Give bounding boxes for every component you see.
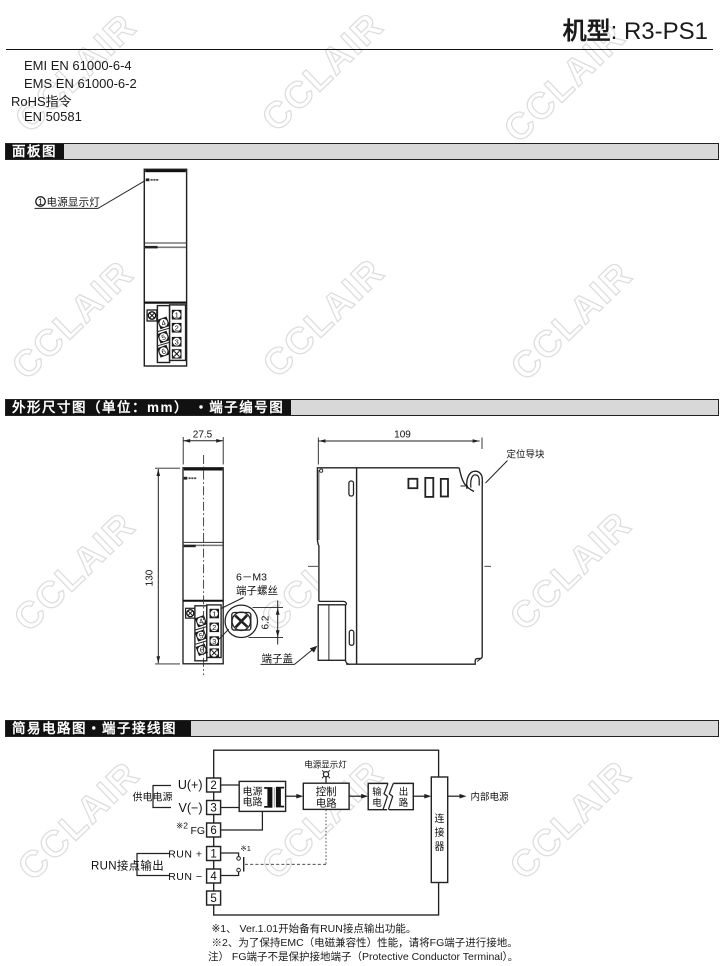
svg-text:3: 3 bbox=[212, 637, 216, 646]
svg-text:电源显示灯: 电源显示灯 bbox=[47, 196, 101, 209]
svg-text:RUN +: RUN + bbox=[168, 848, 202, 860]
svg-text:接: 接 bbox=[435, 826, 445, 839]
svg-text:路: 路 bbox=[399, 797, 409, 809]
svg-text:器: 器 bbox=[435, 841, 445, 853]
svg-text:1: 1 bbox=[38, 197, 43, 207]
svg-text:电路: 电路 bbox=[243, 795, 263, 808]
svg-text:电路: 电路 bbox=[316, 796, 337, 809]
svg-text:2: 2 bbox=[210, 780, 216, 792]
svg-text:U(+): U(+) bbox=[178, 778, 203, 792]
svg-text:130: 130 bbox=[145, 569, 156, 586]
svg-text:1: 1 bbox=[175, 310, 179, 319]
svg-text:1: 1 bbox=[212, 609, 216, 618]
svg-text:5: 5 bbox=[210, 893, 216, 905]
svg-text:3: 3 bbox=[175, 338, 179, 347]
svg-text:3: 3 bbox=[210, 803, 216, 815]
svg-text:2: 2 bbox=[175, 324, 179, 333]
svg-text:6.2: 6.2 bbox=[261, 615, 272, 629]
svg-text:2: 2 bbox=[212, 623, 216, 632]
svg-text:电源显示灯: 电源显示灯 bbox=[304, 759, 347, 769]
svg-text:FG: FG bbox=[191, 825, 206, 837]
svg-text:※2: ※2 bbox=[176, 821, 188, 831]
svg-text:端子螺丝: 端子螺丝 bbox=[236, 584, 278, 597]
svg-text:端子盖: 端子盖 bbox=[262, 652, 294, 665]
svg-text:输: 输 bbox=[372, 786, 382, 798]
svg-text:控制: 控制 bbox=[316, 785, 337, 798]
svg-text:V(−): V(−) bbox=[179, 801, 203, 815]
svg-text:内部电源: 内部电源 bbox=[471, 791, 510, 803]
svg-text:电源: 电源 bbox=[243, 785, 263, 798]
svg-text:供电电源: 供电电源 bbox=[133, 791, 173, 804]
svg-text:109: 109 bbox=[394, 430, 411, 441]
svg-text:4: 4 bbox=[210, 871, 217, 883]
svg-text:定位导块: 定位导块 bbox=[507, 448, 546, 460]
svg-text:6: 6 bbox=[210, 825, 216, 837]
svg-text:电: 电 bbox=[372, 797, 382, 809]
svg-text:RUN −: RUN − bbox=[168, 871, 202, 883]
svg-text:※1: ※1 bbox=[241, 844, 251, 853]
svg-text:1: 1 bbox=[210, 849, 216, 861]
svg-text:6－M3: 6－M3 bbox=[236, 572, 267, 584]
svg-text:RUN接点输出: RUN接点输出 bbox=[91, 859, 164, 873]
svg-text:出: 出 bbox=[399, 786, 409, 798]
svg-text:27.5: 27.5 bbox=[193, 430, 213, 441]
svg-text:连: 连 bbox=[435, 812, 445, 825]
